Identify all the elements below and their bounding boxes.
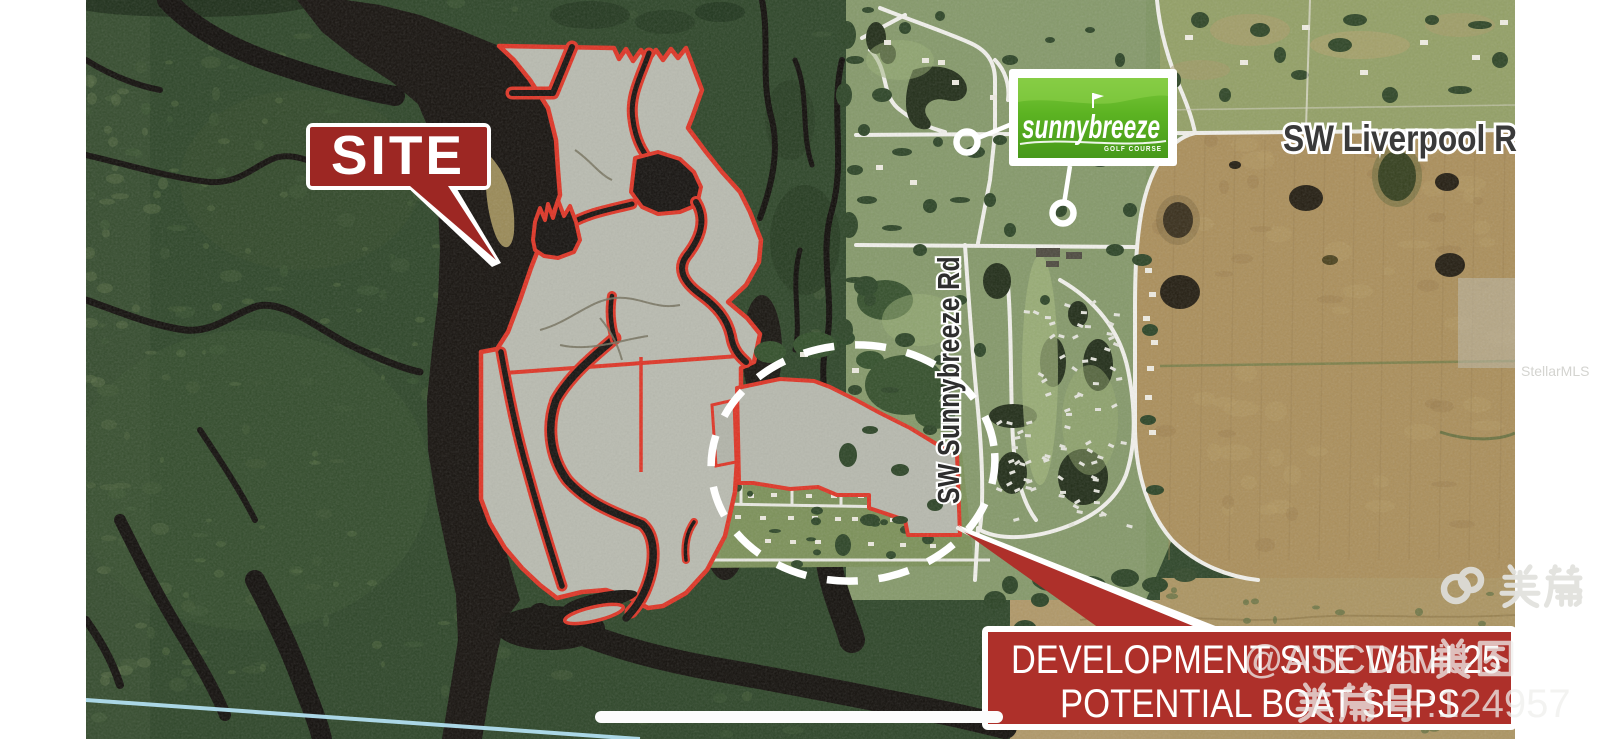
svg-text:SITE: SITE bbox=[331, 124, 465, 186]
svg-text:SW Liverpool R: SW Liverpool R bbox=[1283, 118, 1517, 159]
svg-text:SW Sunnybreeze Rd: SW Sunnybreeze Rd bbox=[931, 256, 966, 504]
svg-text:sunnybreeze: sunnybreeze bbox=[1022, 108, 1160, 145]
svg-text::124957: :124957 bbox=[1426, 682, 1571, 726]
svg-text:@ASCDavid: @ASCDavid bbox=[1243, 638, 1468, 682]
svg-text:GOLF COURSE: GOLF COURSE bbox=[1104, 144, 1162, 153]
svg-text:StellarMLS: StellarMLS bbox=[1521, 363, 1589, 379]
